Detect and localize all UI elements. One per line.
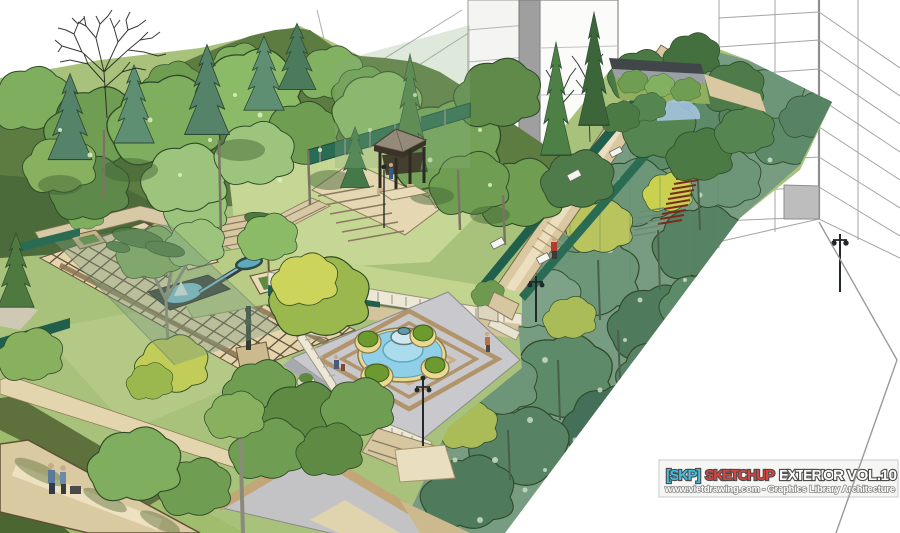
svg-text:EXTERIOR: EXTERIOR	[779, 467, 844, 484]
svg-text:[SKP]: [SKP]	[666, 467, 701, 484]
svg-text:SKETCHUP: SKETCHUP	[705, 467, 775, 484]
svg-text:www.vietdrawing.com - Graphics: www.vietdrawing.com - Graphics Library A…	[664, 484, 895, 495]
